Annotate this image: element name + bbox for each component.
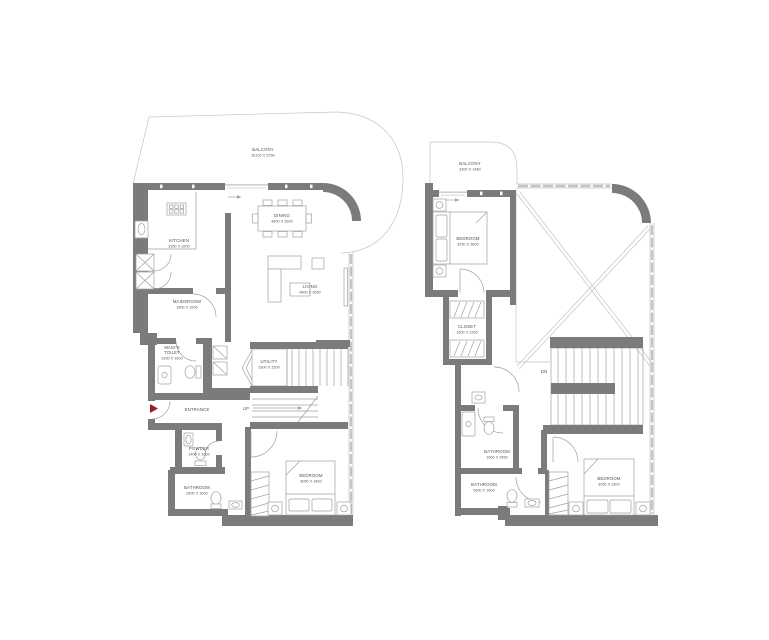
floor2-bathroom-upper-fixtures	[462, 412, 494, 436]
maids-toilet-label2: TOILET	[164, 350, 180, 355]
powder-label: POWDER	[189, 446, 209, 451]
kitchen-dims: 3350 X 3200	[168, 245, 189, 249]
living-label: LIVING	[303, 284, 318, 289]
floor1-bathroom-fixtures	[211, 492, 242, 509]
corridor-basin	[472, 392, 485, 403]
floor1-doors	[152, 195, 277, 457]
floor2-bedroom-bottom-dims: 3050 X 3300	[598, 483, 619, 487]
entrance-marker	[150, 404, 158, 413]
living-dims: 4800 X 3050	[299, 291, 320, 295]
floor1-balcony-label: BALCONY	[252, 147, 274, 152]
floor1-stairs	[242, 342, 348, 429]
dining-dims: 4800 X 2600	[271, 220, 292, 224]
entrance-label: ENTRANCE	[185, 407, 210, 412]
floor2-balcony-label: BALCONY	[459, 161, 481, 166]
floor2-bedroom-bottom-label: BEDROOM	[597, 476, 621, 481]
floor2-labels: BALCONY 3300 X 1480 BEDROOM 3250 X 3600 …	[456, 161, 621, 493]
maidsroom-label: MAIDSROOM	[173, 299, 202, 304]
dining-table	[253, 200, 312, 237]
duct-shafts	[213, 346, 227, 375]
maids-toilet-fixtures	[158, 366, 201, 384]
dn-label: DN	[541, 369, 548, 374]
floor2-bed-bottom	[569, 459, 650, 515]
closet-wardrobes	[450, 301, 484, 357]
floor1-bedroom-label: BEDROOM	[299, 473, 323, 478]
closet-dims: 1500 X 2250	[456, 331, 477, 335]
floor1-balcony-dims: 16100 X 2250	[251, 154, 275, 158]
floor2-balcony-dims: 3300 X 1480	[459, 168, 480, 172]
closet-label: CLOSET	[458, 324, 476, 329]
floor1-wardrobe	[251, 472, 269, 516]
floor-plan-canvas: BALCONY 16100 X 2250 KITCHEN 3350 X 3200…	[0, 0, 769, 640]
floor1-bathroom-label: BATHROOM	[184, 485, 210, 490]
powder-dims: 1400 X 1600	[188, 453, 209, 457]
living-fixtures	[268, 256, 348, 306]
up-label: UP	[243, 406, 249, 411]
maidsroom-dims: 1800 X 3200	[176, 306, 197, 310]
floor2-stairs	[543, 337, 643, 434]
floor2-bedroom-top-dims: 3250 X 3600	[457, 243, 478, 247]
utility-dims: 1500 X 1200	[258, 366, 279, 370]
floor2-bathroom-lower-label: BATHROOM	[471, 482, 497, 487]
floor1-bedroom-dims: 3050 X 3400	[300, 480, 321, 484]
floor2-bathroom-upper-label: BATHROOM	[484, 449, 510, 454]
floor2-bedroom-top-label: BEDROOM	[456, 236, 480, 241]
floor2-bathroom-lower-fixtures	[507, 490, 539, 507]
floor1-bathroom-dims: 2600 X 1600	[186, 492, 207, 496]
floor2-bathroom-lower-dims: 2600 X 1600	[473, 489, 494, 493]
floor1-plan: BALCONY 16100 X 2250 KITCHEN 3350 X 3200…	[133, 112, 403, 526]
floor2-bathroom-upper-dims: 1600 X 2650	[486, 456, 507, 460]
dining-label: DINING	[274, 213, 290, 218]
floor1-bed	[268, 461, 351, 515]
floor-plan-page: BALCONY 16100 X 2250 KITCHEN 3350 X 3200…	[0, 0, 769, 640]
kitchen-label: KITCHEN	[169, 238, 189, 243]
floor2-wardrobe	[549, 472, 568, 515]
maids-toilet-dims: 2200 X 1600	[161, 357, 182, 361]
utility-label: UTILITY	[260, 359, 277, 364]
floor1-window-wall	[349, 252, 353, 516]
floor2-plan: BALCONY 3300 X 1480 BEDROOM 3250 X 3600 …	[425, 142, 658, 526]
